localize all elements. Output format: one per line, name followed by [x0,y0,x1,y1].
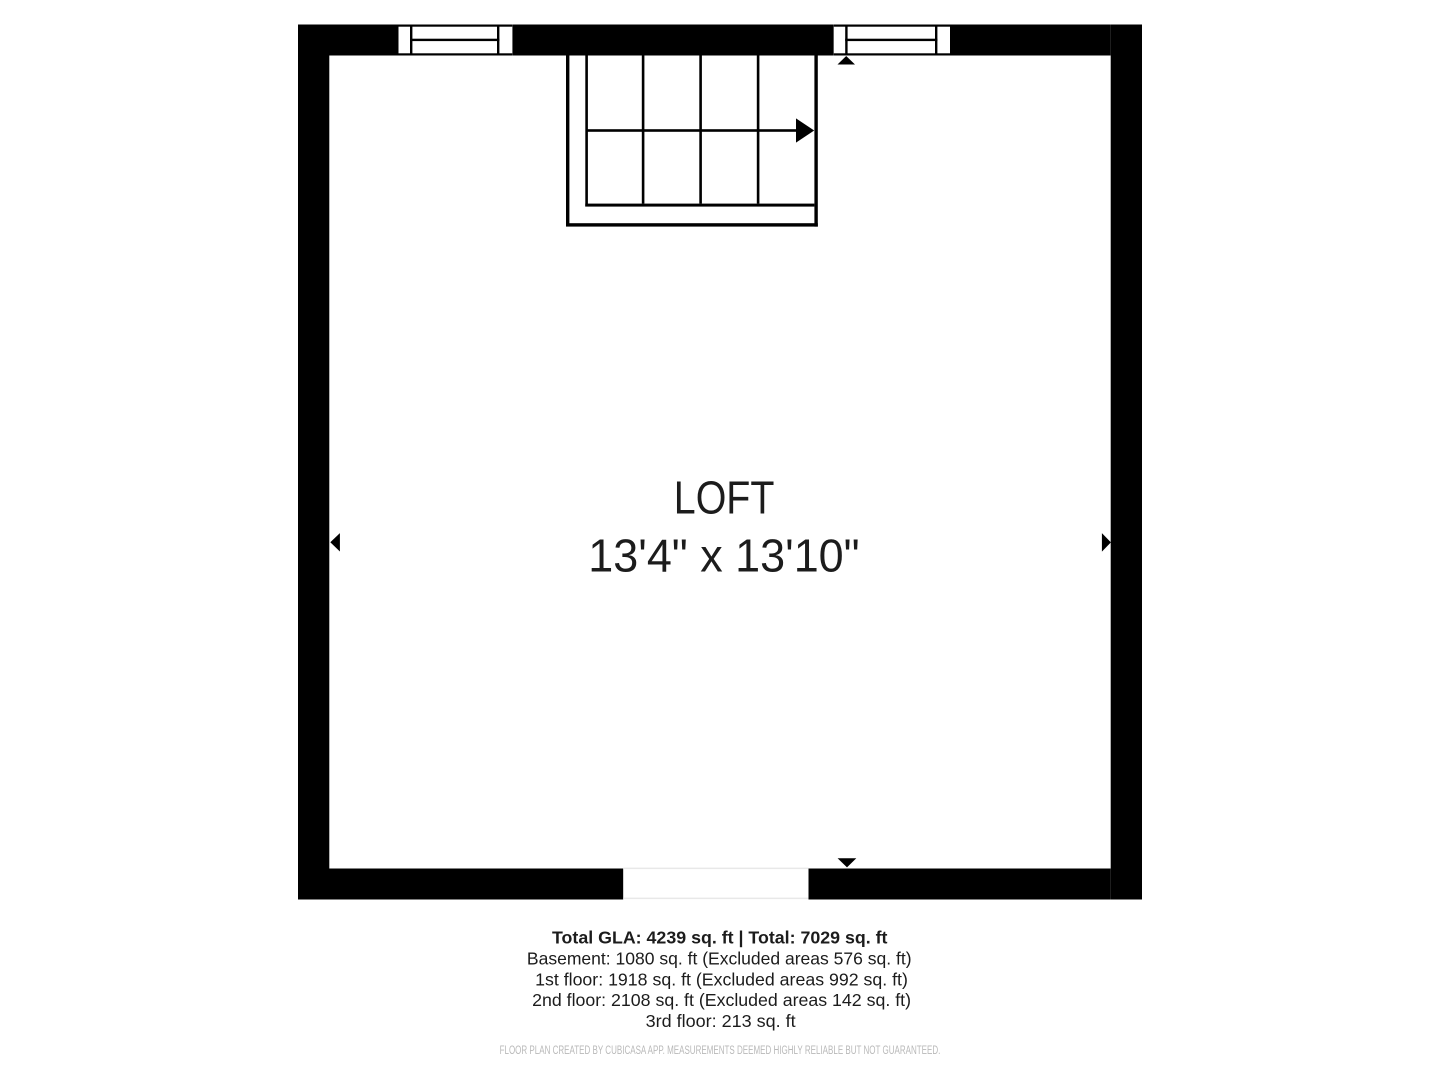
svg-text:Basement: 1080 sq. ft (Exclude: Basement: 1080 sq. ft (Excluded areas 57… [527,948,912,968]
svg-text:13'4" x 13'10": 13'4" x 13'10" [588,529,859,581]
svg-text:1st floor: 1918 sq. ft (Exclud: 1st floor: 1918 sq. ft (Excluded areas 9… [535,969,908,989]
svg-text:2nd floor: 2108 sq. ft (Exclud: 2nd floor: 2108 sq. ft (Excluded areas 1… [532,990,911,1010]
svg-text:3rd floor: 213 sq. ft: 3rd floor: 213 sq. ft [646,1011,796,1031]
svg-text:Total GLA: 4239 sq. ft | Total: Total GLA: 4239 sq. ft | Total: 7029 sq.… [552,927,888,947]
svg-text:LOFT: LOFT [674,471,775,523]
svg-text:FLOOR PLAN CREATED BY CUBICASA: FLOOR PLAN CREATED BY CUBICASA APP. MEAS… [500,1045,941,1057]
